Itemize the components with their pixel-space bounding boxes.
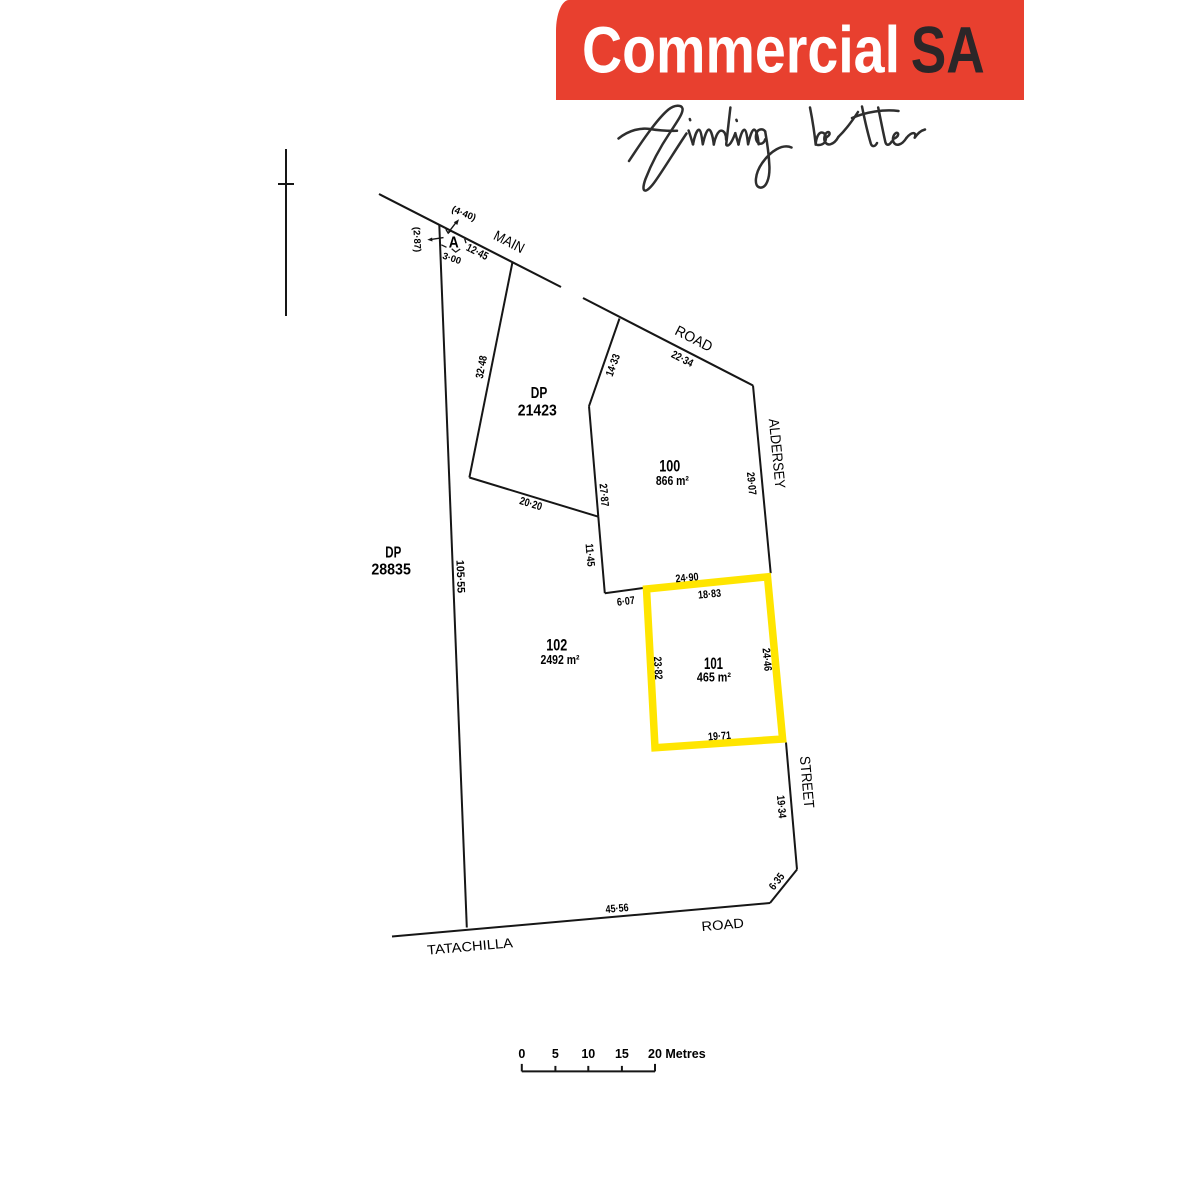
svg-text:100: 100 xyxy=(659,458,680,476)
svg-text:21423: 21423 xyxy=(518,403,557,420)
svg-text:23·82: 23·82 xyxy=(651,656,664,680)
svg-text:105·55: 105·55 xyxy=(453,560,466,593)
svg-text:32·48: 32·48 xyxy=(474,355,490,380)
svg-text:DP: DP xyxy=(385,544,401,561)
svg-text:ROAD: ROAD xyxy=(701,915,745,934)
svg-text:SA: SA xyxy=(911,13,985,87)
svg-text:3·00: 3·00 xyxy=(441,251,462,267)
svg-text:2492 m²: 2492 m² xyxy=(541,653,580,667)
svg-text:(2·87): (2·87) xyxy=(410,227,422,253)
svg-text:19·34: 19·34 xyxy=(774,795,788,820)
svg-text:12·45: 12·45 xyxy=(464,242,490,263)
svg-text:24·46: 24·46 xyxy=(760,648,774,672)
svg-text:866 m²: 866 m² xyxy=(656,474,689,488)
svg-text:Commercial: Commercial xyxy=(582,13,900,87)
svg-text:24·90: 24·90 xyxy=(675,571,699,585)
svg-text:10: 10 xyxy=(581,1047,595,1061)
svg-text:0: 0 xyxy=(518,1047,525,1061)
svg-text:20 Metres: 20 Metres xyxy=(648,1047,706,1061)
svg-text:45·56: 45·56 xyxy=(605,902,629,916)
svg-text:A: A xyxy=(449,235,459,252)
svg-text:ALDERSEY: ALDERSEY xyxy=(765,418,788,489)
svg-text:15: 15 xyxy=(615,1047,629,1061)
svg-text:6·35: 6·35 xyxy=(767,871,788,893)
svg-text:TATACHILLA: TATACHILLA xyxy=(427,935,514,957)
svg-text:27·87: 27·87 xyxy=(597,483,611,507)
svg-text:18·83: 18·83 xyxy=(698,588,722,602)
svg-text:11·45: 11·45 xyxy=(583,543,597,567)
svg-text:6·07: 6·07 xyxy=(616,595,635,609)
svg-text:102: 102 xyxy=(546,636,567,654)
svg-text:29·07: 29·07 xyxy=(744,472,758,496)
svg-text:28835: 28835 xyxy=(371,562,411,579)
svg-text:19·71: 19·71 xyxy=(708,730,732,744)
svg-text:DP: DP xyxy=(531,385,548,402)
svg-text:22·34: 22·34 xyxy=(669,349,696,370)
svg-text:STREET: STREET xyxy=(796,756,816,809)
svg-text:(4·40): (4·40) xyxy=(450,204,478,224)
svg-text:5: 5 xyxy=(552,1047,559,1061)
svg-text:465 m²: 465 m² xyxy=(697,671,731,685)
